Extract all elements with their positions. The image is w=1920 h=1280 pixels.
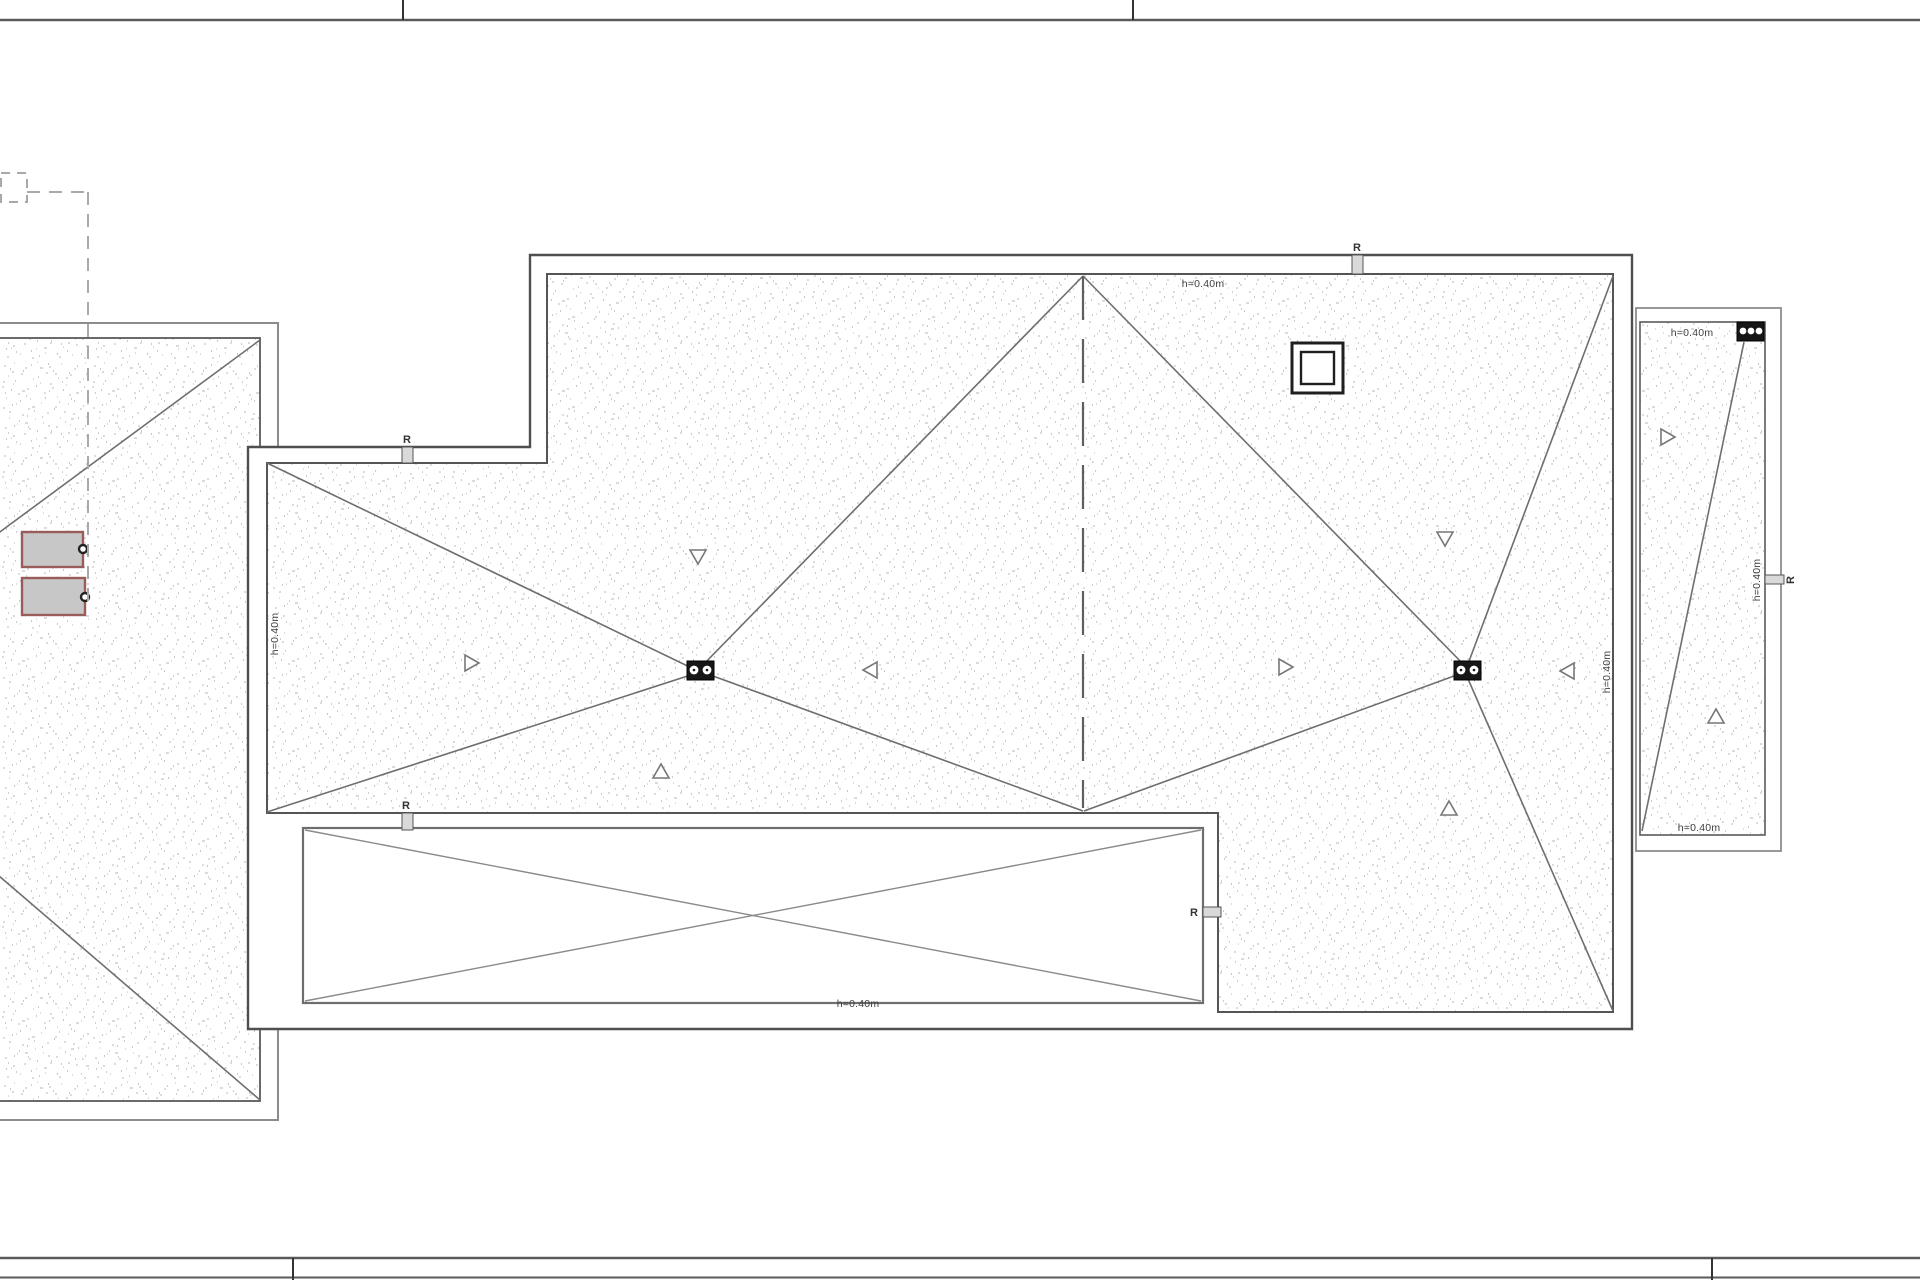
r-marker-panel-box bbox=[1765, 575, 1784, 584]
drain-dot bbox=[706, 669, 709, 672]
left-building-roof bbox=[0, 323, 278, 1120]
r-marker-terrace-label: R bbox=[1190, 907, 1198, 919]
label-parapet-main-top: h=0.40m bbox=[1182, 278, 1225, 290]
label-parapet-terrace: h=0.40m bbox=[837, 998, 880, 1010]
dashed-reference-box bbox=[1, 173, 27, 202]
label-parapet-main-right: h=0.40m bbox=[1601, 651, 1613, 694]
sheet-border-top bbox=[0, 0, 1920, 20]
skylight-2 bbox=[22, 578, 89, 615]
roof-drain-panel-hole-3 bbox=[1756, 328, 1763, 335]
roof-plan-drawing: h=0.40m h=0.40m h=0.40m h=0.40m R R R R bbox=[0, 0, 1920, 1280]
terrace-opening bbox=[303, 828, 1203, 1003]
roof-drain-panel bbox=[1737, 322, 1764, 341]
label-parapet-main-left: h=0.40m bbox=[269, 613, 281, 656]
skylight-1-box bbox=[22, 532, 83, 567]
left-roof-surface bbox=[0, 338, 260, 1101]
label-parapet-panel-side: h=0.40m bbox=[1751, 559, 1763, 602]
label-parapet-panel-bottom: h=0.40m bbox=[1678, 822, 1721, 834]
r-marker-lowerleft-label: R bbox=[402, 800, 410, 812]
roof-drain-panel-hole-1 bbox=[1740, 328, 1747, 335]
r-marker-lowerleft-box bbox=[402, 813, 413, 830]
skylight-1-connector-icon bbox=[79, 545, 87, 553]
roof-drain-left bbox=[687, 661, 714, 680]
r-marker-step-label: R bbox=[403, 434, 411, 446]
roof-drain-panel-hole-2 bbox=[1748, 328, 1755, 335]
skylight-2-box bbox=[22, 578, 85, 615]
r-marker-top-label: R bbox=[1353, 242, 1361, 254]
sheet-border-bottom bbox=[0, 1258, 1920, 1280]
r-marker-panel-label: R bbox=[1785, 576, 1797, 584]
r-marker-terrace-box bbox=[1203, 907, 1221, 917]
chimney bbox=[1292, 343, 1343, 393]
right-building-roof: h=0.40m h=0.40m h=0.40m R bbox=[1636, 308, 1797, 851]
drain-dot bbox=[1460, 669, 1463, 672]
skylight-1 bbox=[22, 532, 87, 567]
roof-drain-right bbox=[1454, 661, 1481, 680]
r-marker-step-box bbox=[402, 447, 413, 463]
drain-dot bbox=[1473, 669, 1476, 672]
chimney-inner bbox=[1301, 352, 1334, 384]
label-parapet-panel-top: h=0.40m bbox=[1671, 327, 1714, 339]
r-marker-top-box bbox=[1352, 255, 1363, 274]
drain-dot bbox=[693, 669, 696, 672]
right-roof-surface bbox=[1640, 322, 1765, 835]
main-building-roof: h=0.40m h=0.40m h=0.40m h=0.40m R R R R bbox=[248, 242, 1632, 1029]
roof-plan-svg: h=0.40m h=0.40m h=0.40m h=0.40m R R R R bbox=[0, 0, 1920, 1280]
